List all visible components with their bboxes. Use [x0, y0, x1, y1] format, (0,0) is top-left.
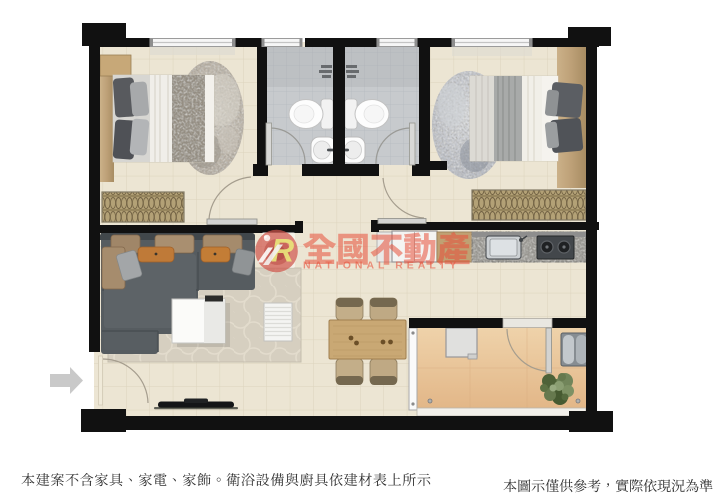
- svg-text:NATIONAL REALTY: NATIONAL REALTY: [303, 260, 460, 272]
